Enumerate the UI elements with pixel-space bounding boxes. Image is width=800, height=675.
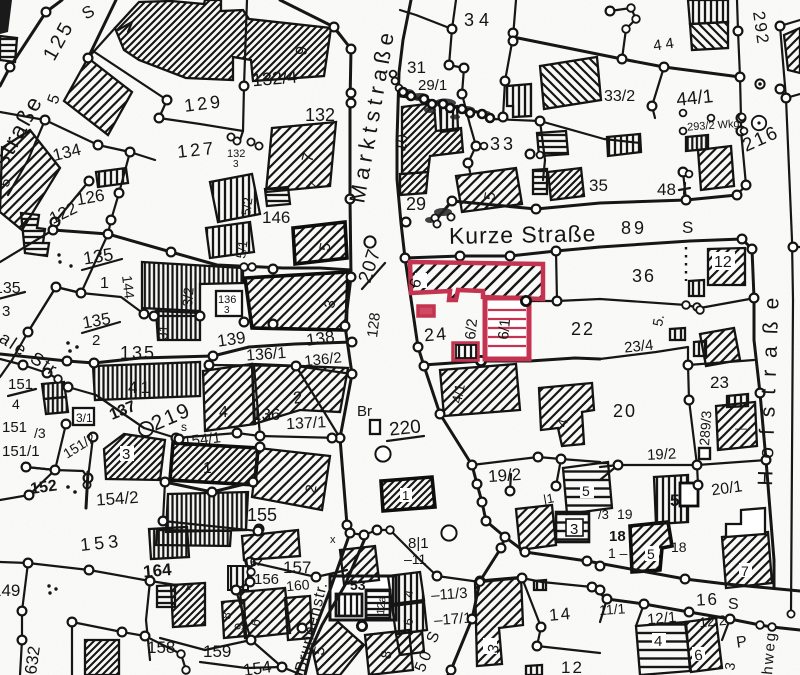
svg-text:155: 155 <box>247 505 277 525</box>
svg-text:–11/3: –11/3 <box>431 585 469 605</box>
svg-text:146: 146 <box>262 208 290 227</box>
svg-text:18: 18 <box>671 539 687 555</box>
svg-text:4: 4 <box>219 404 228 421</box>
svg-text:154/2: 154/2 <box>96 488 140 510</box>
svg-text:x: x <box>185 579 191 593</box>
svg-text:S: S <box>728 596 739 613</box>
svg-text:41: 41 <box>128 378 153 397</box>
svg-text:89: 89 <box>621 218 647 238</box>
svg-text:139: 139 <box>216 328 247 351</box>
svg-text:136: 136 <box>252 405 280 424</box>
svg-text:33/2: 33/2 <box>604 88 635 105</box>
svg-text:3: 3 <box>2 303 10 320</box>
svg-text:31: 31 <box>407 58 426 77</box>
svg-text:157: 157 <box>283 558 311 577</box>
svg-text:5: 5 <box>647 546 655 562</box>
svg-text:137/1: 137/1 <box>286 414 327 433</box>
svg-text:154: 154 <box>242 657 273 675</box>
svg-text:3: 3 <box>570 521 578 538</box>
svg-text:632: 632 <box>21 645 44 675</box>
svg-text:3/1: 3/1 <box>76 411 93 425</box>
svg-text:158: 158 <box>147 638 175 657</box>
svg-text:34: 34 <box>464 10 494 30</box>
svg-text:132/4: 132/4 <box>251 67 298 91</box>
svg-text:132: 132 <box>305 105 335 125</box>
svg-text:3: 3 <box>224 305 230 316</box>
svg-text:7: 7 <box>741 563 749 579</box>
svg-text:12: 12 <box>714 254 732 271</box>
svg-text:138: 138 <box>305 327 336 350</box>
svg-text:5/1: 5/1 <box>233 239 250 259</box>
svg-text:29: 29 <box>406 194 426 214</box>
svg-text:12: 12 <box>561 658 584 675</box>
svg-text:14: 14 <box>548 604 572 625</box>
svg-text:3/2: 3/2 <box>179 286 197 307</box>
svg-text:31: 31 <box>155 325 171 341</box>
svg-text:2: 2 <box>92 332 100 349</box>
svg-text:162: 162 <box>242 554 264 571</box>
svg-text:12/1: 12/1 <box>646 609 677 628</box>
svg-text:Br: Br <box>357 403 372 420</box>
svg-text:/3: /3 <box>34 425 46 441</box>
svg-text:1: 1 <box>100 275 109 292</box>
svg-text:19: 19 <box>617 506 633 522</box>
svg-text:1 –: 1 – <box>608 545 628 561</box>
svg-text:23/4: 23/4 <box>623 337 654 357</box>
svg-text:128: 128 <box>364 312 384 339</box>
svg-text:164: 164 <box>142 560 172 581</box>
svg-text:24: 24 <box>423 323 449 345</box>
svg-text:5/2: 5/2 <box>238 196 255 216</box>
svg-text:44: 44 <box>652 34 679 54</box>
svg-text:s: s <box>181 420 187 434</box>
svg-text:18: 18 <box>609 528 626 545</box>
svg-text:1: 1 <box>402 488 409 503</box>
svg-text:33: 33 <box>490 134 516 154</box>
svg-text:3: 3 <box>233 159 239 170</box>
svg-text:35: 35 <box>589 176 608 195</box>
svg-text:19/2: 19/2 <box>647 445 677 464</box>
svg-text:36: 36 <box>632 266 656 286</box>
svg-text:5: 5 <box>582 483 590 499</box>
svg-text:20: 20 <box>613 401 637 421</box>
svg-text:S: S <box>682 218 693 237</box>
svg-text:160: 160 <box>285 576 310 594</box>
svg-text:3: 3 <box>122 446 130 463</box>
svg-text:48: 48 <box>657 180 676 199</box>
svg-text:—: — <box>735 421 747 435</box>
svg-text:29/1: 29/1 <box>418 77 447 94</box>
svg-text:4: 4 <box>12 396 20 412</box>
svg-text:44/1: 44/1 <box>675 86 714 111</box>
svg-text:156: 156 <box>254 571 279 588</box>
svg-text:8|1: 8|1 <box>408 535 429 552</box>
svg-text:151: 151 <box>2 419 27 436</box>
svg-text:151/1: 151/1 <box>2 443 40 460</box>
svg-text:/3: /3 <box>598 507 609 522</box>
svg-text:135: 135 <box>120 343 156 363</box>
svg-text:12/2: 12/2 <box>698 612 727 630</box>
svg-text:144: 144 <box>119 274 138 299</box>
svg-text:12a: 12a <box>375 595 389 615</box>
svg-text:23: 23 <box>710 373 729 392</box>
svg-text:19/2: 19/2 <box>487 465 521 486</box>
svg-text:136/1: 136/1 <box>246 345 287 365</box>
svg-text:5: 5 <box>670 491 679 510</box>
svg-text:x: x <box>330 534 336 546</box>
svg-text:22: 22 <box>571 319 595 339</box>
svg-text:11/1: 11/1 <box>599 600 626 618</box>
svg-text:10: 10 <box>392 133 412 152</box>
svg-text:53: 53 <box>350 577 366 593</box>
svg-text:1: 1 <box>203 460 212 477</box>
svg-text:149: 149 <box>0 581 20 600</box>
svg-text:6/1: 6/1 <box>495 318 514 341</box>
svg-text:Kurze Straße: Kurze Straße <box>449 220 597 249</box>
svg-text:6/2: 6/2 <box>462 318 481 341</box>
svg-text:16: 16 <box>696 590 720 610</box>
svg-text:4: 4 <box>654 633 662 650</box>
svg-text:159: 159 <box>203 642 231 661</box>
svg-text:–11: –11 <box>404 551 427 567</box>
svg-text:289/3: 289/3 <box>696 410 714 446</box>
svg-text:127: 127 <box>176 138 217 162</box>
svg-text:–17/1: –17/1 <box>434 610 473 630</box>
